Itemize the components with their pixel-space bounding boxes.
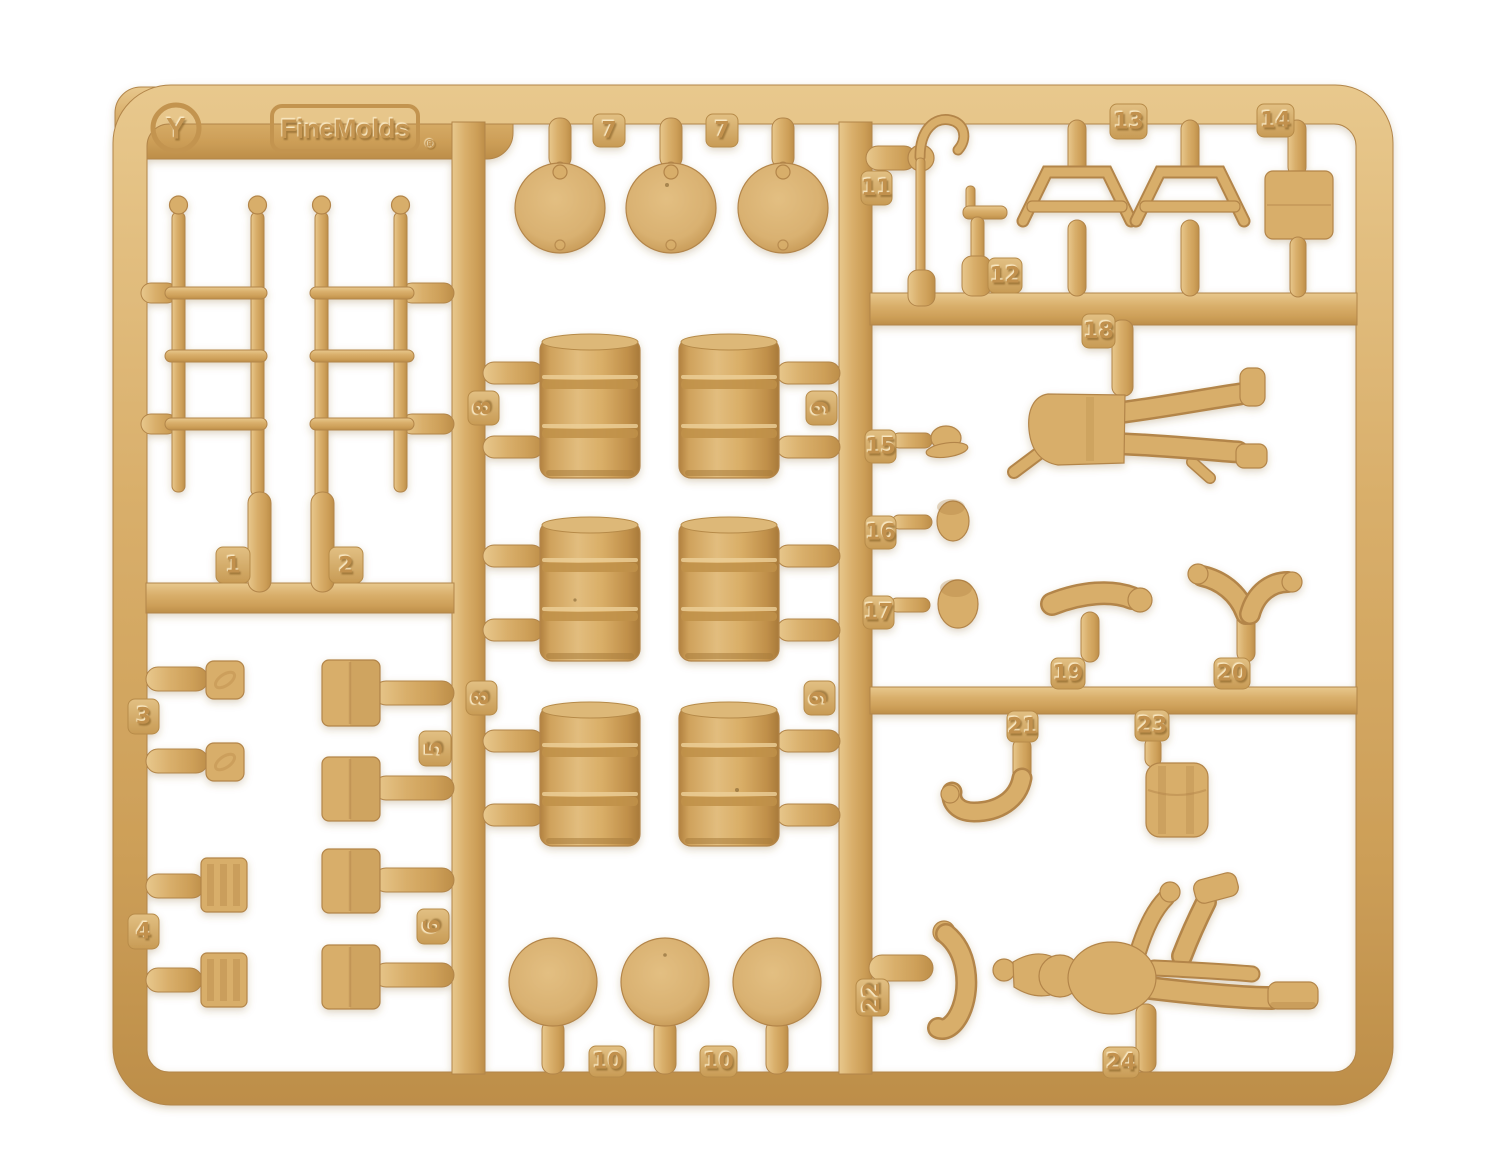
part-21-arm [941, 738, 1031, 812]
part-24-seated-figure [993, 871, 1318, 1072]
tag-label-23: 23 [1137, 714, 1168, 739]
runner-divider-left [452, 122, 485, 1074]
tag-label-11: 11 [861, 176, 892, 201]
part-number-tag-6: 6 [417, 909, 449, 944]
tag-label-4: 4 [136, 920, 151, 945]
tag-label-8b: 8 [469, 690, 494, 705]
oil-drum [540, 334, 640, 478]
part-number-tag-16: 16 [865, 516, 896, 549]
part-17-head [890, 579, 978, 628]
part-number-tag-21: 21 [1007, 711, 1038, 742]
part-11-hook [866, 120, 964, 306]
oil-drum [540, 702, 640, 846]
part-23-backpack [1145, 737, 1208, 837]
part-number-tag-20: 20 [1214, 658, 1250, 689]
part-number-tag-10a: 10 [589, 1046, 626, 1077]
tag-label-7a: 7 [601, 119, 616, 144]
part-number-tag-10b: 10 [700, 1046, 737, 1077]
tag-label-18: 18 [1083, 319, 1114, 344]
tag-label-2: 2 [338, 554, 353, 579]
part-4-ribbed-blocks [146, 858, 247, 1007]
tag-label-22: 22 [860, 982, 885, 1013]
part-number-tag-22: 22 [856, 979, 889, 1016]
part-number-tag-9b: 9 [804, 681, 835, 715]
oil-drum [540, 517, 640, 661]
part-number-tag-11: 11 [861, 171, 892, 205]
part-3-plates [146, 661, 244, 781]
part-16-head [892, 499, 969, 541]
part-number-tag-7b: 7 [706, 114, 738, 147]
part-number-tag-23: 23 [1135, 710, 1169, 741]
part-15-cap [892, 426, 969, 460]
part-number-tag-15: 15 [865, 430, 896, 463]
part-14-box [1265, 120, 1333, 297]
gate-letter: Y [166, 113, 186, 146]
tag-label-15: 15 [865, 435, 896, 460]
part-number-tag-8a: 8 [468, 391, 499, 425]
tag-label-1: 1 [225, 554, 240, 579]
part-number-tag-18: 18 [1082, 314, 1115, 348]
tag-label-13: 13 [1113, 110, 1144, 135]
tag-label-9b: 9 [807, 690, 832, 705]
tag-label-17: 17 [863, 601, 894, 626]
runner-left-horizontal [146, 583, 454, 613]
part-number-tag-17: 17 [863, 596, 894, 629]
tag-label-16: 16 [865, 521, 896, 546]
tag-label-24: 24 [1106, 1051, 1137, 1076]
part-7-drum-lids [515, 118, 828, 253]
part-number-tag-24: 24 [1103, 1047, 1139, 1078]
oil-drum [679, 517, 779, 661]
tag-label-8a: 8 [471, 400, 496, 415]
part-number-tag-2: 2 [329, 547, 363, 583]
part-19-arm [1052, 588, 1152, 662]
oil-drum [679, 334, 779, 478]
sprue-photo: Y FineMolds ® [0, 0, 1500, 1173]
part-number-tag-19: 19 [1051, 658, 1085, 689]
tag-label-21: 21 [1007, 715, 1038, 740]
part-number-tag-1: 1 [216, 547, 250, 583]
tag-label-3: 3 [136, 705, 151, 730]
part-1-ladder [141, 196, 271, 592]
tag-label-14: 14 [1260, 109, 1291, 134]
part-number-tag-9a: 9 [806, 391, 837, 425]
tag-label-9a: 9 [809, 400, 834, 415]
oil-drum [679, 702, 779, 846]
tag-label-10b: 10 [703, 1050, 734, 1075]
part-18-standing-figure [1014, 320, 1267, 478]
part-number-tag-14: 14 [1257, 104, 1294, 137]
part-10-drum-lids [509, 938, 821, 1074]
part-number-tag-7a: 7 [593, 114, 625, 147]
tag-label-19: 19 [1053, 662, 1084, 687]
tag-label-5: 5 [423, 741, 448, 756]
part-number-tag-4: 4 [128, 914, 159, 949]
part-number-tag-13: 13 [1110, 104, 1147, 139]
tag-label-10a: 10 [592, 1050, 623, 1075]
part-13-trestle-stands [1023, 120, 1244, 296]
part-8-9-oil-drums [483, 334, 840, 846]
brand-name: FineMolds [281, 114, 410, 144]
sprue: Y FineMolds ® [113, 85, 1393, 1105]
registered-trademark: ® [424, 138, 437, 153]
part-number-tag-3: 3 [128, 699, 159, 734]
part-number-tag-12: 12 [988, 258, 1022, 293]
runner-right-lower [870, 687, 1357, 714]
part-2-ladder [310, 196, 454, 592]
part-number-tag-5: 5 [419, 731, 451, 766]
tag-label-12: 12 [990, 264, 1021, 289]
tag-label-7b: 7 [714, 119, 729, 144]
tag-label-6: 6 [421, 919, 446, 934]
part-20-arms [1188, 564, 1302, 662]
part-number-tag-8b: 8 [466, 681, 497, 715]
tag-label-20: 20 [1217, 662, 1248, 687]
